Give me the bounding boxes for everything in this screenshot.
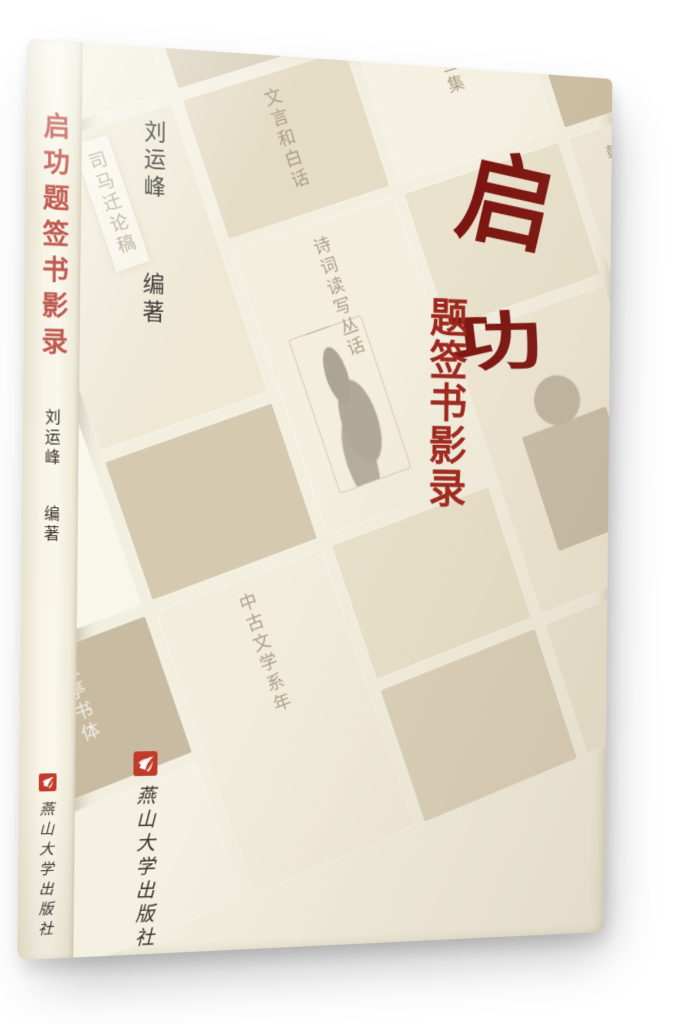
cover-author: 刘运峰	[139, 119, 165, 203]
spine-author-role: 编著	[38, 505, 62, 545]
spine-author-block: 刘运峰 编著	[38, 408, 63, 545]
book-front-cover: 李何林纪念文集顺生论禅外说禅司马迁论稿文言和白话月旦集诗词读写丛话韩非子选评学林…	[73, 42, 612, 957]
collage-tile-label: 韩非子选评	[603, 112, 612, 165]
book: 启功题签书影录 刘运峰 编著 燕山大学出版社 李何林纪念文集顺生论禅外说禅司马迁…	[17, 38, 612, 960]
collage-tile-label: 中古文学系年	[233, 589, 297, 718]
spine-publisher: 燕山大学出版社	[35, 801, 57, 941]
collage-tile-label: 文言和白话	[258, 84, 315, 193]
cover-author-role: 编著	[134, 272, 167, 328]
ink-figure-illustration	[289, 315, 412, 494]
cover-author-block: 刘运峰 编著	[134, 119, 169, 328]
spine-author: 刘运峰	[42, 408, 61, 468]
collage-tile-label: 兰亭书体	[73, 656, 106, 747]
flower-petal-logo-icon	[133, 751, 157, 776]
flower-petal-logo-icon	[38, 773, 56, 791]
cover-subtitle: 题签书影录	[416, 295, 473, 509]
cover-publisher: 燕山大学出版社	[130, 784, 160, 950]
spine-title: 启功题签书影录	[32, 111, 73, 364]
collage-tile-label: 月旦集	[428, 42, 470, 98]
cover-publisher-block: 燕山大学出版社	[130, 751, 160, 951]
spine-publisher-block: 燕山大学出版社	[17, 773, 75, 943]
book-spine: 启功题签书影录 刘运峰 编著 燕山大学出版社	[17, 38, 83, 960]
